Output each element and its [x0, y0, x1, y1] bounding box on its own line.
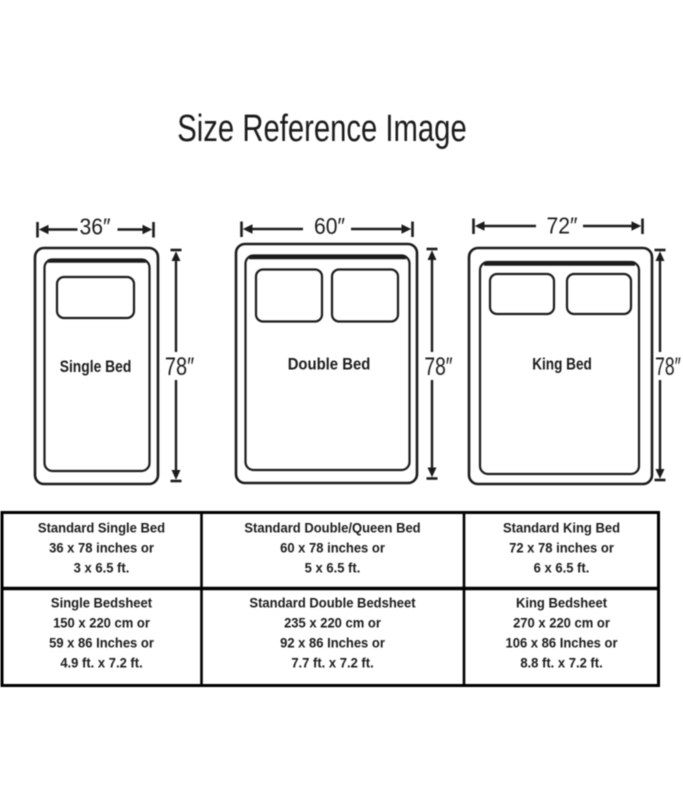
- svg-text:5 x 6.5 ft.: 5 x 6.5 ft.: [305, 560, 361, 576]
- svg-text:Standard Single Bed: Standard Single Bed: [38, 520, 165, 536]
- svg-text:King Bedsheet: King Bedsheet: [516, 595, 608, 611]
- svg-text:106 x 86 Inches or: 106 x 86 Inches or: [505, 635, 618, 651]
- svg-text:60″: 60″: [314, 213, 345, 239]
- svg-text:Single Bed: Single Bed: [60, 358, 132, 377]
- svg-text:8.8 ft. x 7.2 ft.: 8.8 ft. x 7.2 ft.: [520, 655, 602, 671]
- svg-text:36 x 78 inches or: 36 x 78 inches or: [49, 540, 155, 556]
- svg-text:Standard Double/Queen Bed: Standard Double/Queen Bed: [244, 520, 420, 536]
- svg-text:6 x 6.5 ft.: 6 x 6.5 ft.: [534, 560, 590, 576]
- svg-text:36″: 36″: [80, 214, 111, 240]
- svg-text:Size Reference Image: Size Reference Image: [177, 107, 466, 150]
- svg-text:78″: 78″: [165, 353, 194, 381]
- svg-text:150 x 220 cm or: 150 x 220 cm or: [53, 615, 151, 631]
- svg-text:60 x 78 inches or: 60 x 78 inches or: [280, 540, 386, 556]
- svg-text:Single Bedsheet: Single Bedsheet: [51, 595, 153, 611]
- svg-text:78″: 78″: [424, 353, 452, 381]
- svg-text:3 x 6.5 ft.: 3 x 6.5 ft.: [74, 560, 130, 576]
- svg-text:72″: 72″: [547, 213, 578, 239]
- svg-text:59 x 86 Inches or: 59 x 86 Inches or: [49, 635, 155, 651]
- svg-text:78″: 78″: [655, 352, 681, 381]
- svg-text:King Bed: King Bed: [532, 355, 592, 374]
- svg-text:Standard Double Bedsheet: Standard Double Bedsheet: [249, 595, 416, 611]
- svg-text:7.7 ft. x 7.2 ft.: 7.7 ft. x 7.2 ft.: [291, 655, 373, 671]
- svg-text:Double Bed: Double Bed: [288, 356, 371, 374]
- svg-text:235 x 220 cm or: 235 x 220 cm or: [284, 615, 382, 631]
- svg-text:92 x 86 Inches or: 92 x 86 Inches or: [280, 635, 386, 651]
- svg-text:4.9 ft. x 7.2 ft.: 4.9 ft. x 7.2 ft.: [60, 655, 142, 671]
- svg-text:270 x 220 cm or: 270 x 220 cm or: [513, 615, 611, 631]
- svg-text:72 x 78 inches or: 72 x 78 inches or: [509, 540, 615, 556]
- svg-text:Standard King Bed: Standard King Bed: [503, 520, 620, 536]
